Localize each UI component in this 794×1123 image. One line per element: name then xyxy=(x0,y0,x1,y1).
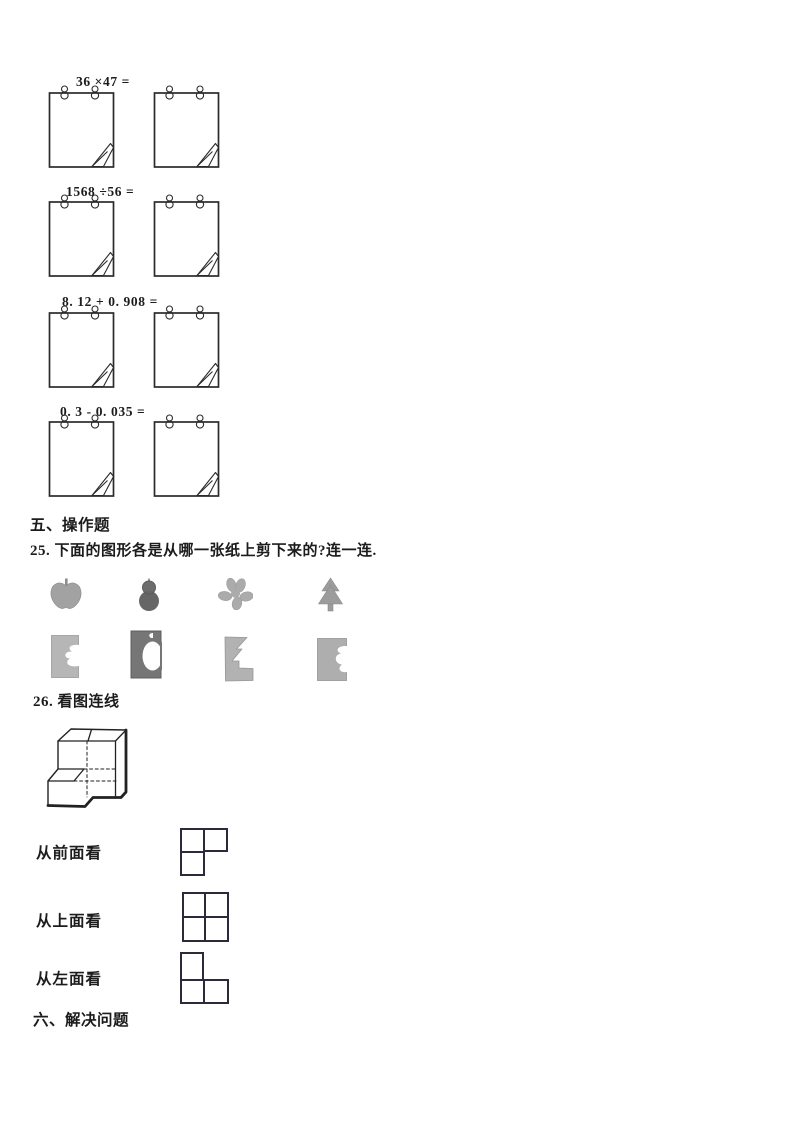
view-from-front-label: 从前面看 xyxy=(36,841,102,863)
notepad-answer-box xyxy=(48,414,116,502)
pine-tree-shape-icon xyxy=(314,576,347,613)
notepad-answer-box xyxy=(153,194,221,282)
notepad-answer-box xyxy=(153,414,221,502)
view-from-top-label: 从上面看 xyxy=(36,909,102,931)
paper-with-gourd-cutout xyxy=(130,630,164,680)
answer-pads-row-3 xyxy=(48,305,221,393)
flower-shape-icon xyxy=(218,578,253,610)
notepad-answer-box xyxy=(48,194,116,282)
apple-shape-icon xyxy=(47,575,85,613)
top-view-figure xyxy=(181,891,231,945)
question-26-text: 26. 看图连线 xyxy=(33,690,120,711)
view-from-left-label: 从左面看 xyxy=(36,967,102,989)
notepad-answer-box xyxy=(48,85,116,173)
question-25-text: 25. 下面的图形各是从哪一张纸上剪下来的?连一连. xyxy=(30,539,377,560)
left-view-figure xyxy=(179,951,231,1006)
notepad-answer-box xyxy=(153,85,221,173)
notepad-answer-box xyxy=(153,305,221,393)
paper-with-flower-cutout xyxy=(51,635,80,679)
answer-pads-row-2 xyxy=(48,194,221,282)
paper-with-apple-cutout xyxy=(317,638,348,682)
gourd-shape-icon xyxy=(133,575,165,615)
answer-pads-row-1 xyxy=(48,85,221,173)
cube-solid-figure xyxy=(38,719,133,813)
section-five-title: 五、操作题 xyxy=(30,513,110,535)
front-view-figure xyxy=(179,827,230,878)
paper-with-tree-cutout xyxy=(224,636,255,682)
answer-pads-row-4 xyxy=(48,414,221,502)
section-six-title: 六、解决问题 xyxy=(33,1008,129,1030)
notepad-answer-box xyxy=(48,305,116,393)
worksheet-page: 36 ×47 = 1568 ÷56 = 8. 12 + 0. 908 = 0. … xyxy=(0,0,794,1123)
